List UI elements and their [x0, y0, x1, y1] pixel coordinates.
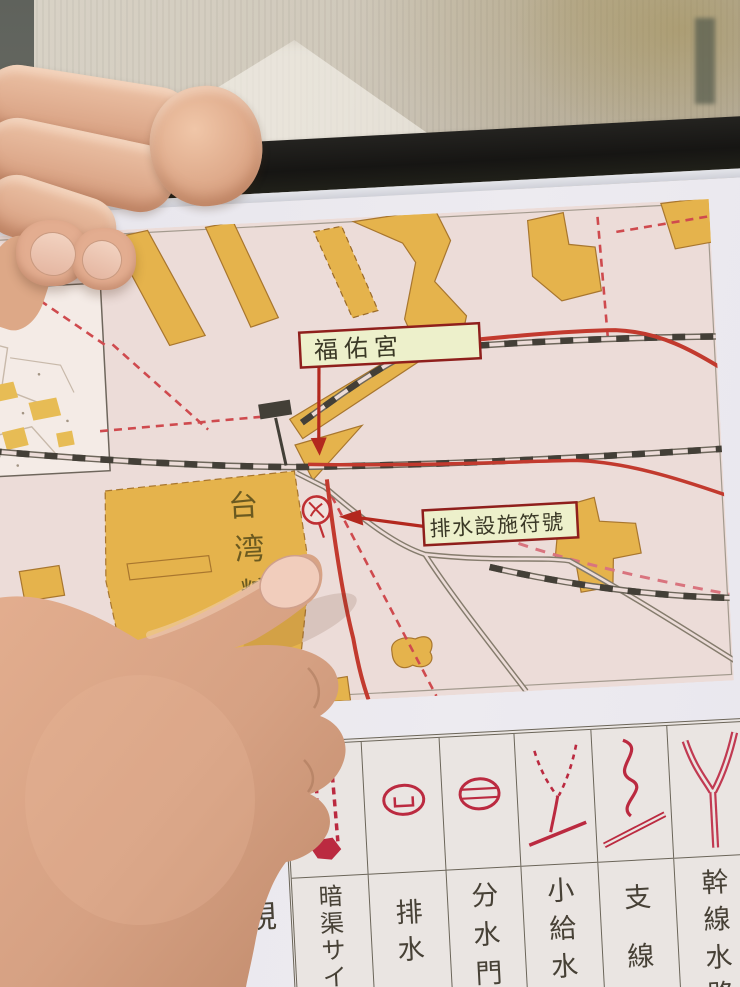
branch-line-symbol: [594, 730, 670, 857]
legend-label-division-gate: 分水門: [469, 876, 507, 987]
legend-label-drainage: 排水: [393, 894, 430, 987]
legend-label-trunk-waterway: 幹線水路: [699, 864, 737, 987]
inset-place-character: 留: [1, 299, 30, 330]
legend-label-culvert: 暗渠サイホ: [317, 884, 351, 987]
map-document: 留: [0, 115, 740, 987]
division-gate-symbol: [442, 738, 518, 865]
callout-fuyou-temple-label: 福佑宮: [313, 333, 404, 365]
legend-label-small-supply: 小給水: [545, 872, 583, 987]
legend-label-branch-line: 支線: [621, 868, 659, 987]
svg-text:糖: 糖: [240, 577, 272, 612]
historical-map: 留: [0, 199, 734, 719]
svg-text:台: 台: [227, 489, 259, 524]
culvert-siphon-symbol: [288, 746, 364, 873]
map-page: 留: [0, 176, 740, 987]
svg-text:湾: 湾: [234, 533, 266, 568]
map-inset-panel: 留: [0, 283, 110, 479]
drainage-outlet-symbol: [365, 742, 441, 869]
legend-table: 暗渠サイホ 排水: [282, 718, 740, 987]
small-supply-channel-symbol: [518, 734, 594, 861]
trunk-waterway-symbol: [672, 726, 740, 853]
legend-col-trunk-waterway: 幹線水路: [666, 722, 740, 987]
legend-partial-left-label: 視: [244, 891, 277, 938]
photo-scene: 留: [0, 0, 740, 987]
